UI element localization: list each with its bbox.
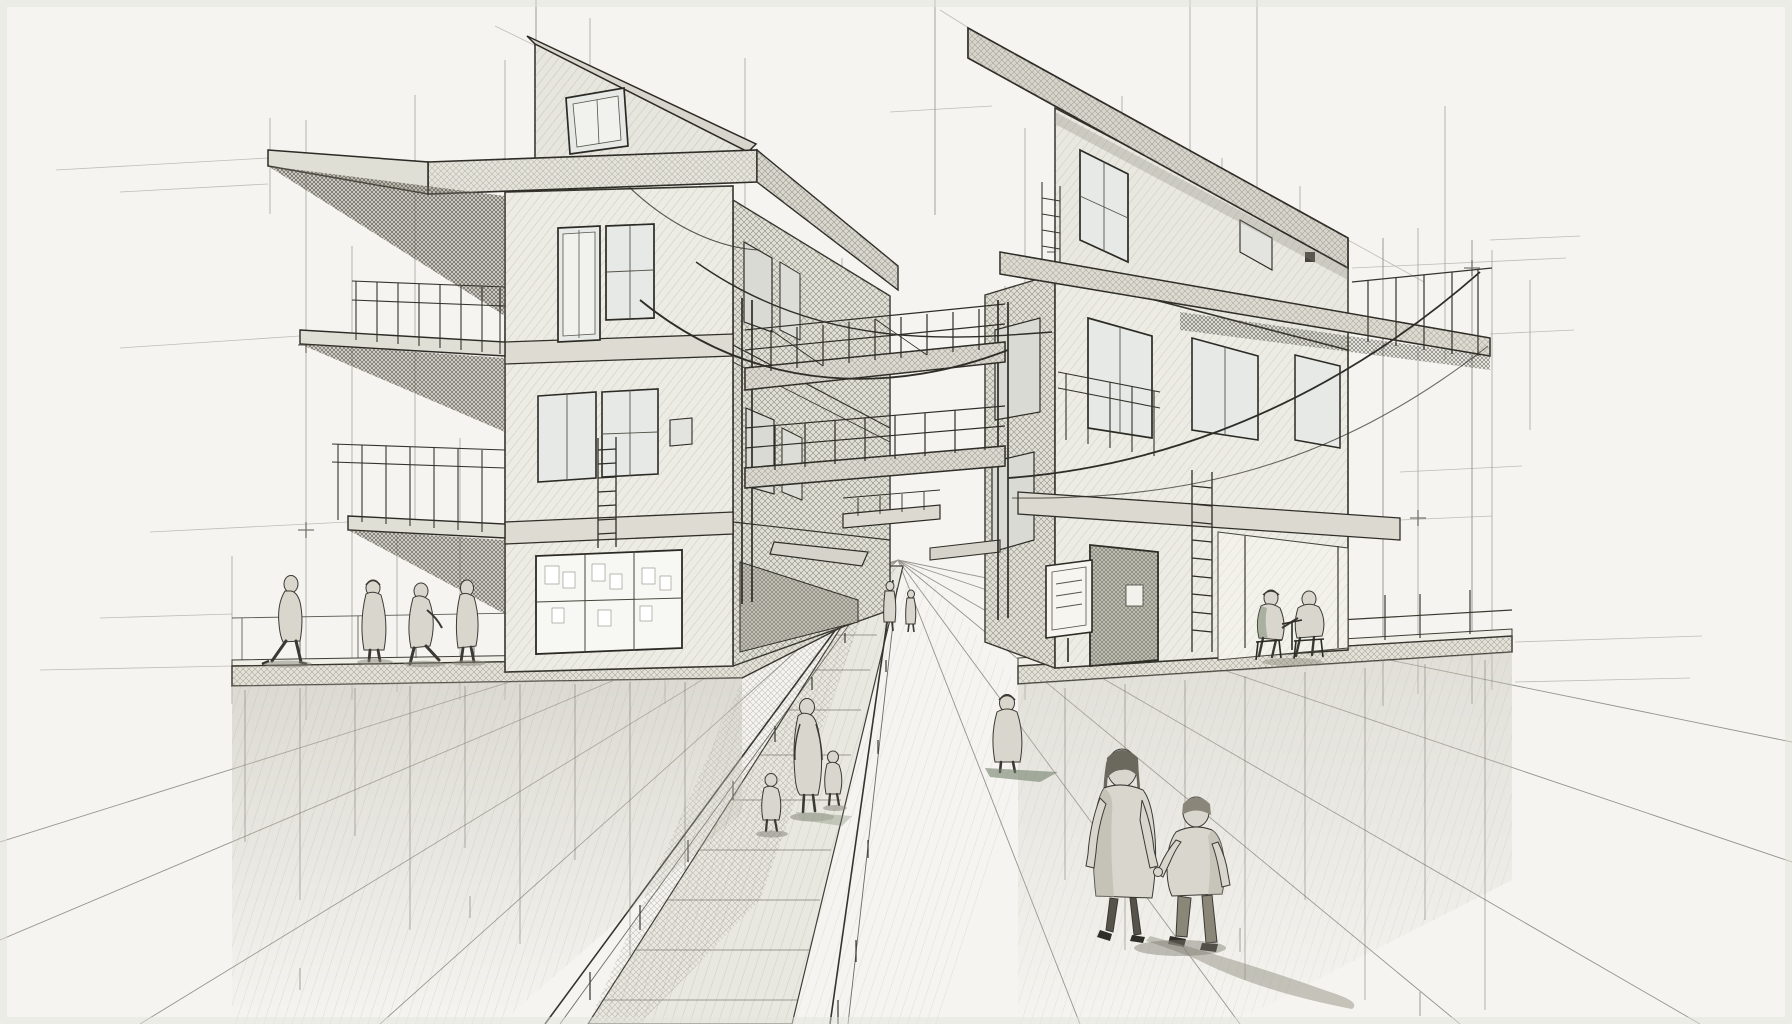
- sketch-stage: Pencil architectural sketch: two cantile…: [0, 0, 1792, 1024]
- left-building-front-face: [505, 186, 733, 672]
- joined-hands: [1154, 868, 1163, 877]
- street-window-upper-1: [744, 242, 772, 332]
- attic-window: [566, 88, 628, 154]
- top-floor-door: [558, 226, 600, 342]
- architectural-sketch: [0, 0, 1792, 1024]
- door-plaque: [1126, 585, 1143, 606]
- paper-covered-window: [536, 550, 682, 654]
- right-entry-door: [1090, 545, 1158, 666]
